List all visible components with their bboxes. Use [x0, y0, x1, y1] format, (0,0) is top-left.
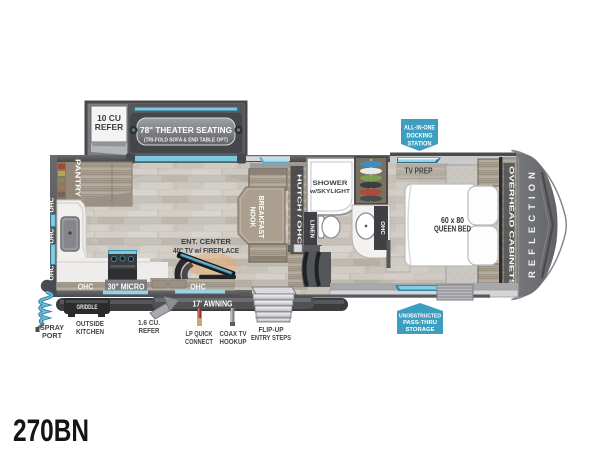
svg-text:REFER: REFER	[139, 326, 161, 335]
svg-text:REFER: REFER	[95, 122, 123, 132]
svg-text:ENT. CENTER: ENT. CENTER	[181, 237, 231, 246]
svg-text:TV PREP: TV PREP	[405, 167, 433, 176]
svg-text:270BN: 270BN	[13, 412, 89, 448]
svg-text:OHC: OHC	[78, 283, 94, 292]
svg-text:HUTCH / OHC: HUTCH / OHC	[296, 174, 302, 244]
svg-text:GRIDDLE: GRIDDLE	[77, 305, 98, 311]
svg-text:SHOWER: SHOWER	[313, 180, 348, 187]
svg-text:40" TV w/ FIREPLACE: 40" TV w/ FIREPLACE	[173, 246, 239, 255]
svg-text:BREAKFAST: BREAKFAST	[257, 196, 264, 240]
svg-text:OHC: OHC	[379, 221, 385, 235]
svg-text:30" MICRO: 30" MICRO	[108, 282, 145, 291]
svg-text:UNOBSTRUCTED: UNOBSTRUCTED	[399, 314, 441, 320]
svg-text:DOCKING: DOCKING	[407, 133, 433, 140]
svg-text:PORT: PORT	[42, 331, 63, 340]
svg-text:OHC: OHC	[49, 197, 56, 212]
svg-text:STORAGE: STORAGE	[405, 327, 434, 333]
svg-text:LINEN: LINEN	[309, 220, 315, 238]
svg-text:OHC: OHC	[49, 265, 56, 280]
svg-text:PANTRY: PANTRY	[74, 159, 81, 197]
svg-text:(TRI-FOLD SOFA & END TABLE OPT: (TRI-FOLD SOFA & END TABLE OPT)	[144, 138, 228, 144]
svg-text:PASS-THRU: PASS-THRU	[403, 320, 437, 326]
svg-text:QUEEN BED: QUEEN BED	[434, 225, 471, 234]
svg-text:w/SKYLIGHT: w/SKYLIGHT	[309, 189, 351, 195]
svg-text:OHC: OHC	[190, 282, 206, 291]
svg-text:STATION: STATION	[408, 141, 432, 148]
svg-text:NOOK: NOOK	[249, 207, 256, 228]
svg-text:ALL-IN-ONE: ALL-IN-ONE	[404, 125, 435, 132]
svg-text:HOOKUP: HOOKUP	[220, 337, 247, 346]
svg-text:17' AWNING: 17' AWNING	[193, 299, 233, 309]
svg-text:KITCHEN: KITCHEN	[76, 327, 104, 336]
svg-text:OHC: OHC	[49, 228, 56, 243]
svg-text:CONNECT: CONNECT	[185, 337, 213, 346]
svg-text:OVERHEAD CABINETS: OVERHEAD CABINETS	[508, 166, 515, 287]
svg-text:ENTRY STEPS: ENTRY STEPS	[251, 333, 291, 342]
svg-text:78" THEATER SEATING: 78" THEATER SEATING	[140, 125, 232, 135]
